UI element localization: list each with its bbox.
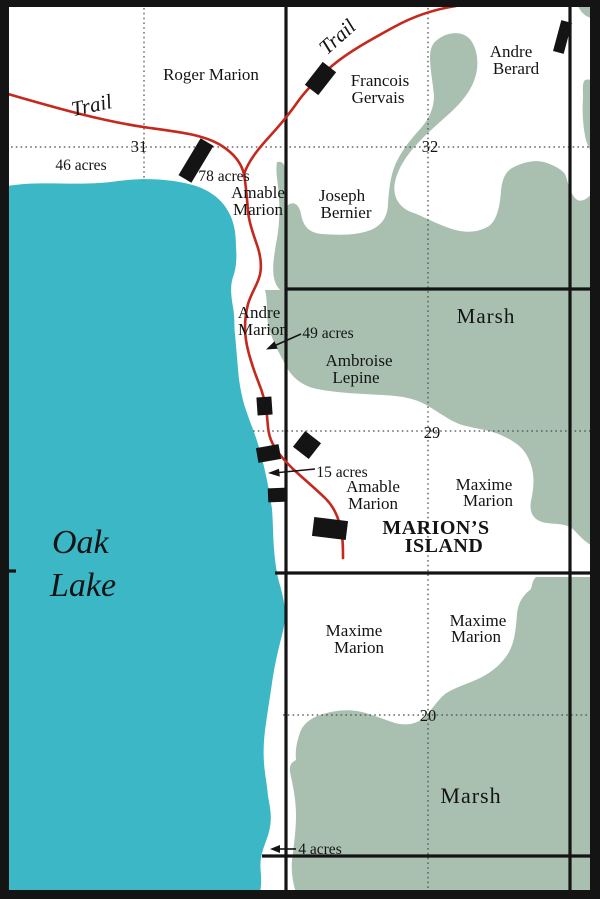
lake-label-1: Oak <box>52 524 110 561</box>
owner-label-maxime-marion-se-2: Marion <box>451 627 502 646</box>
frame-top <box>0 0 600 7</box>
marsh-label-south: Marsh <box>440 783 501 808</box>
owner-label-amable-marion-island-2: Marion <box>348 494 399 513</box>
owner-label-francois-gervais-2: Gervais <box>352 88 405 107</box>
owner-label-andre-marion-2: Marion <box>238 320 289 339</box>
frame-bottom <box>0 890 600 899</box>
map-canvas: Roger Marion Trail Trail 46 acres 31 78 … <box>0 0 600 899</box>
owner-label-maxime-marion-east-2: Marion <box>463 491 514 510</box>
acreage-label-49: 49 acres <box>302 325 353 342</box>
owner-label-roger-marion: Roger Marion <box>163 65 259 84</box>
building-marker-shore-1 <box>256 396 272 415</box>
section-number-20: 20 <box>420 706 437 725</box>
building-marker-shore-3 <box>268 488 287 503</box>
survey-map: Roger Marion Trail Trail 46 acres 31 78 … <box>0 0 600 899</box>
acreage-label-46: 46 acres <box>55 157 106 174</box>
acreage-label-4: 4 acres <box>298 841 341 858</box>
owner-label-joseph-bernier-2: Bernier <box>321 203 372 222</box>
frame-left <box>0 0 9 899</box>
frame-right <box>590 0 600 899</box>
owner-label-amable-marion-north-2: Marion <box>233 200 284 219</box>
section-number-29: 29 <box>424 423 441 442</box>
section-number-32: 32 <box>422 137 439 156</box>
owner-label-andre-berard-2: Berard <box>493 59 540 78</box>
section-number-31: 31 <box>131 137 148 156</box>
owner-label-maxime-marion-sw-2: Marion <box>334 638 385 657</box>
marsh-label-north: Marsh <box>457 304 516 328</box>
island-label-2: ISLAND <box>405 535 484 557</box>
lake-label-2: Lake <box>49 567 116 604</box>
owner-label-ambroise-lepine-2: Lepine <box>332 368 379 387</box>
